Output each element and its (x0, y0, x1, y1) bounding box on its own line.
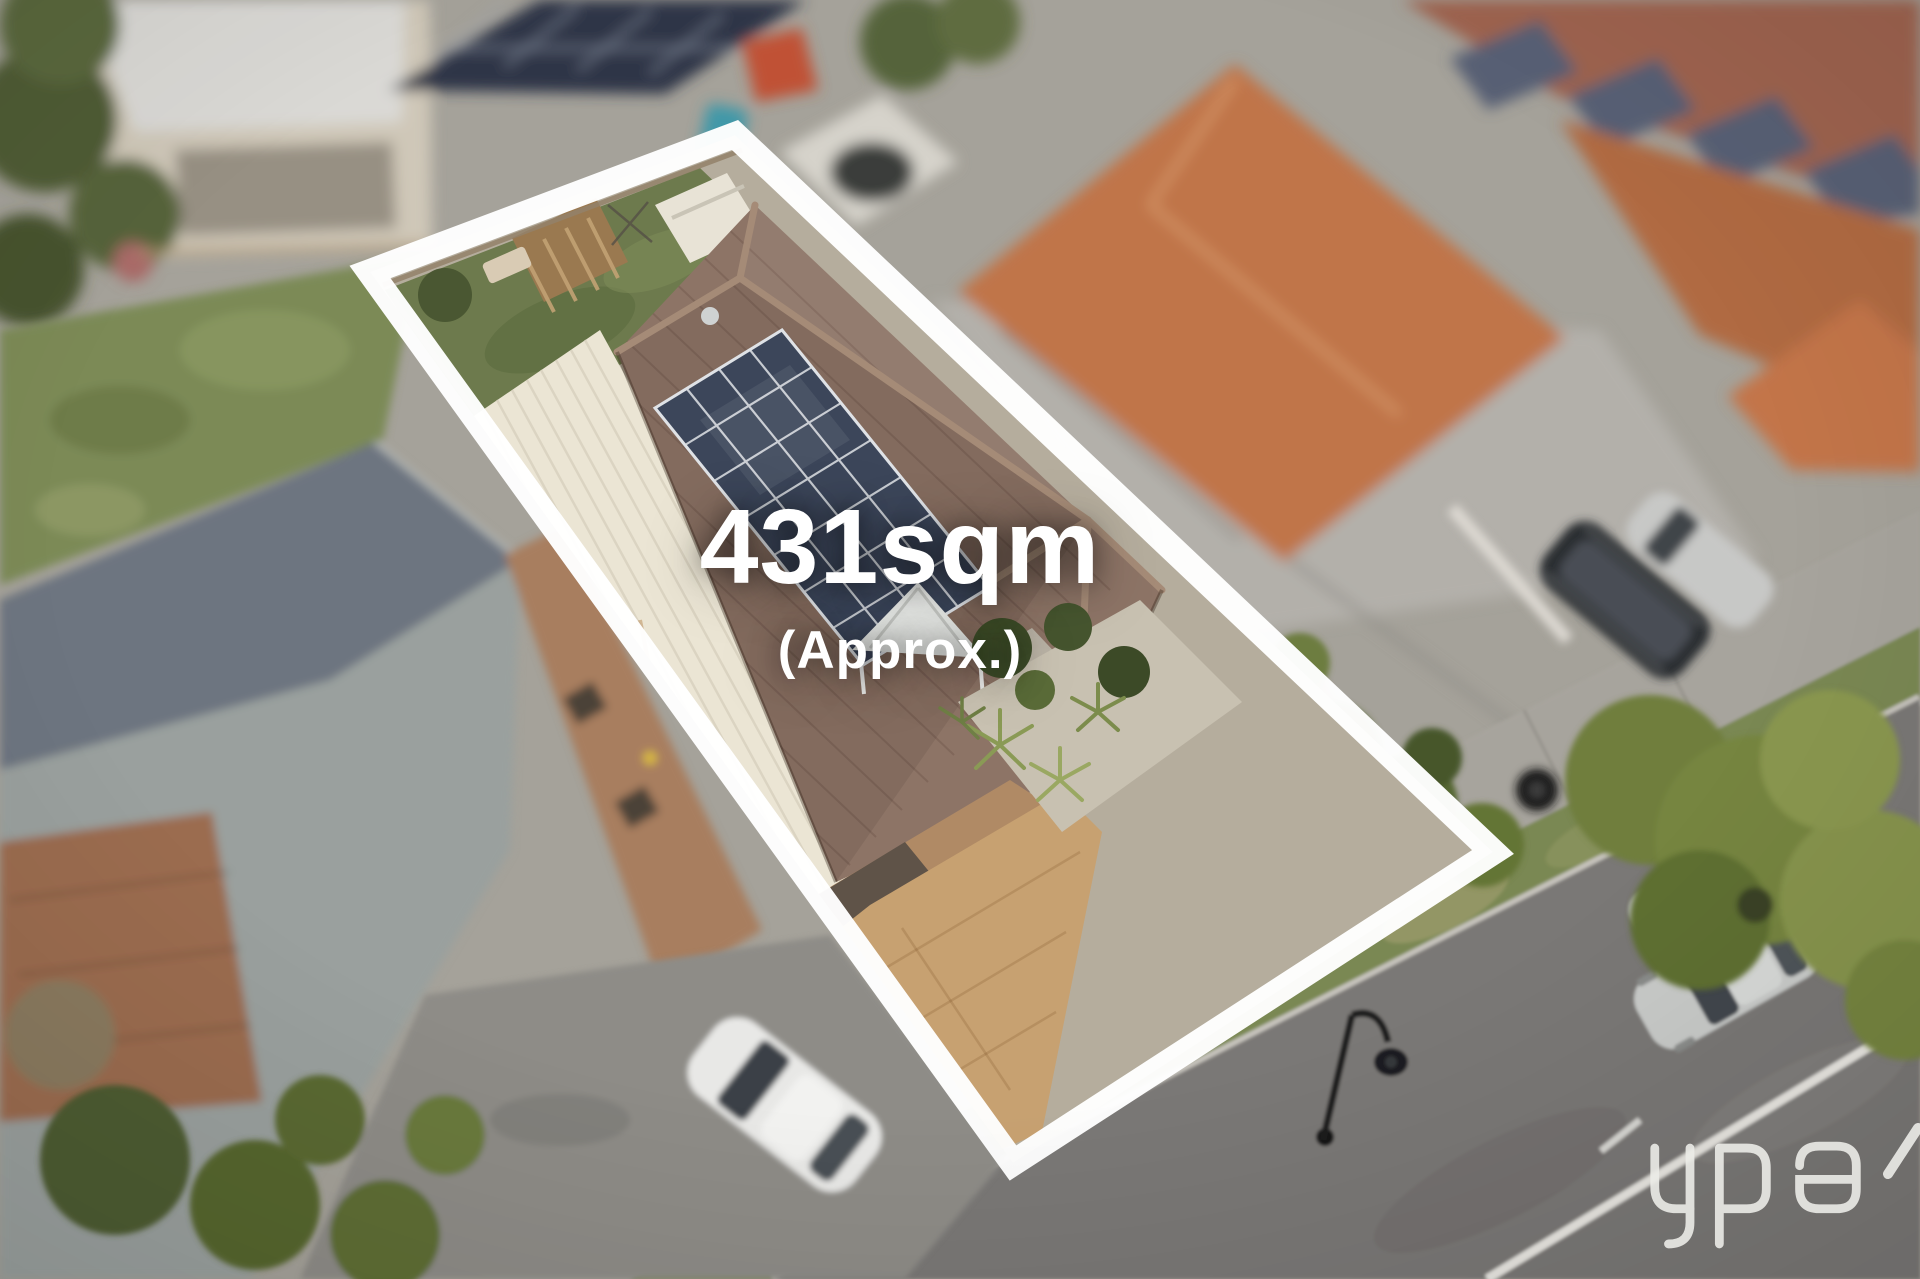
aerial-photo: 431sqm (Approx.) ypa (0, 0, 1920, 1279)
approx-label: (Approx.) (640, 624, 1160, 677)
ypa-logo-mark-partial (1878, 1112, 1920, 1182)
ypa-watermark: ypa (1645, 1140, 1870, 1252)
area-label: 431sqm (640, 494, 1160, 600)
ypa-logo (1645, 1140, 1870, 1252)
